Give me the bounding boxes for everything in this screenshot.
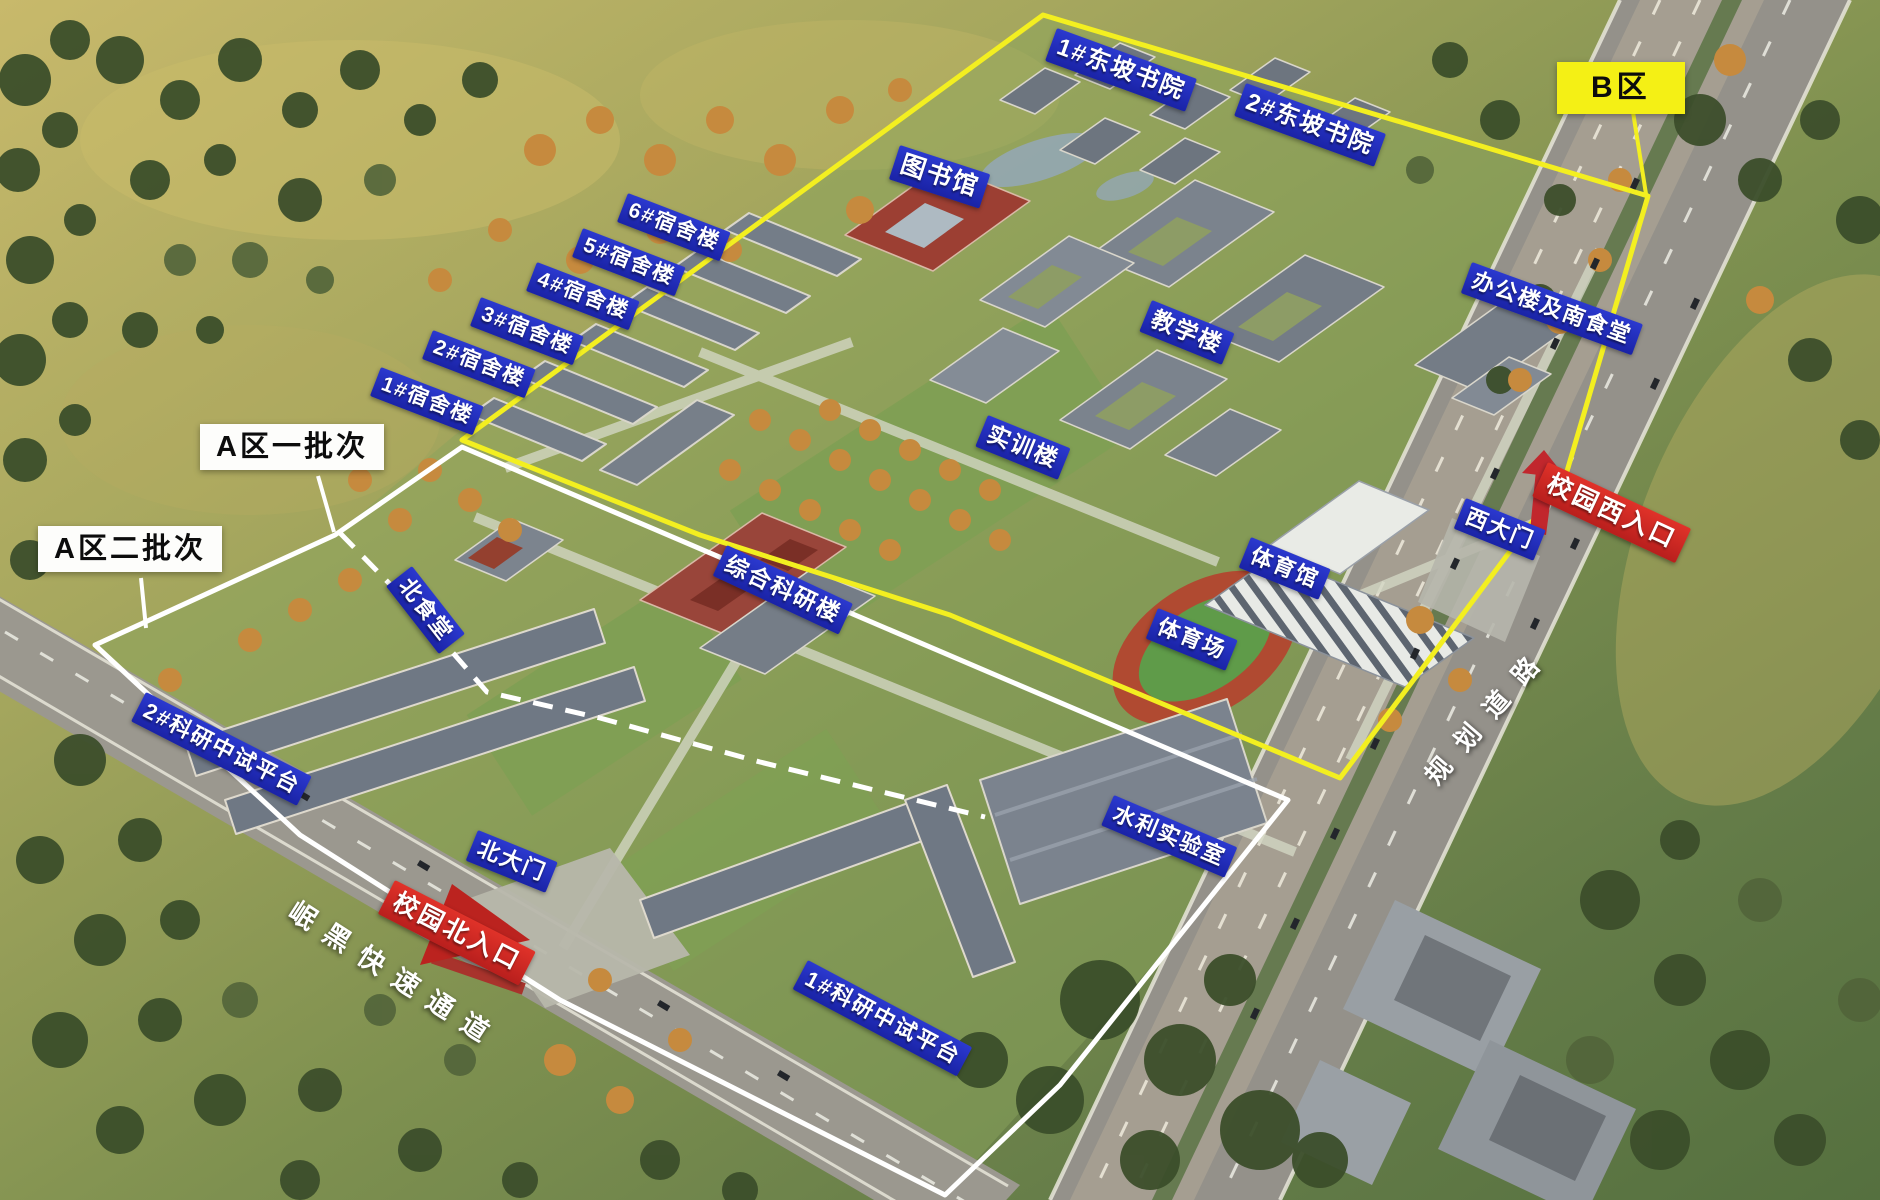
campus-master-plan: 1#东坡书院 2#东坡书院 图书馆 6#宿舍楼 5#宿舍楼 4#宿舍楼 3#宿舍…	[0, 0, 1880, 1200]
label-zone-a-batch-2: A区二批次	[38, 526, 222, 572]
label-zone-b: B区	[1557, 62, 1685, 114]
label-zone-a-batch-1: A区一批次	[200, 424, 384, 470]
